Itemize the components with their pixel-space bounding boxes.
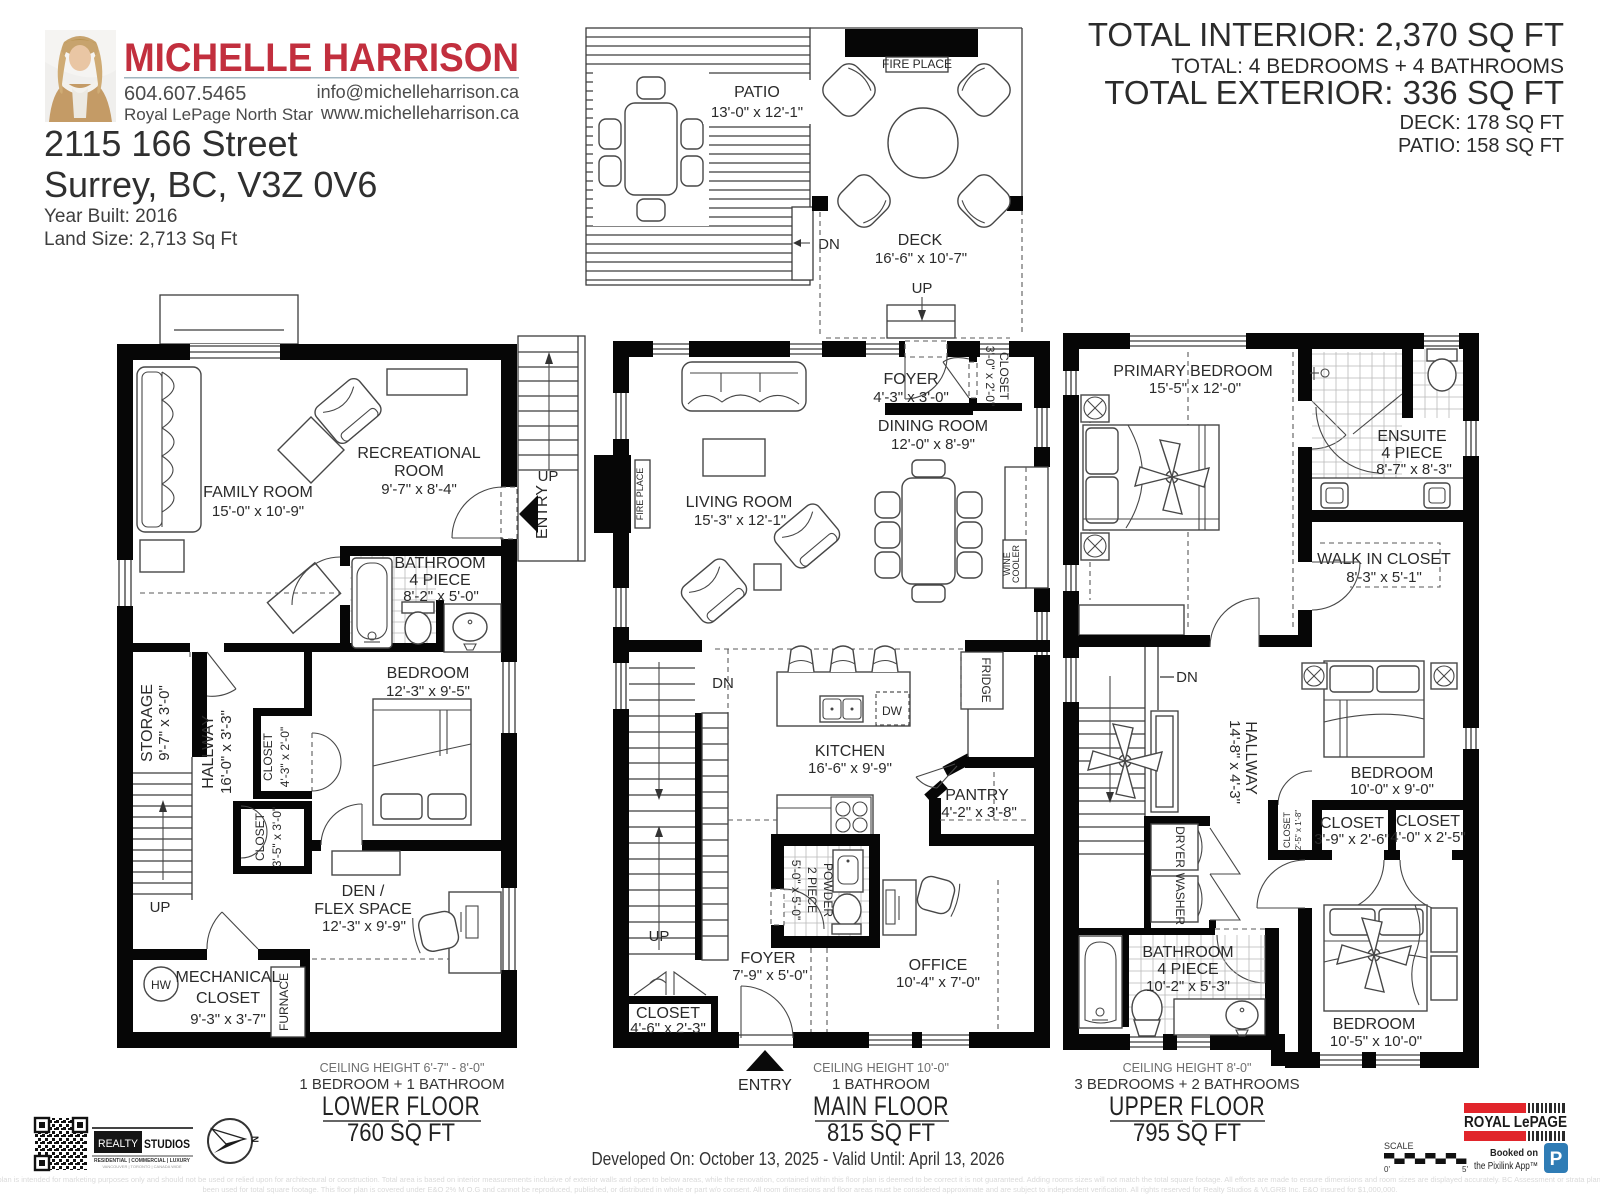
- svg-text:WALK IN CLOSET: WALK IN CLOSET: [1317, 551, 1451, 568]
- svg-text:CLOSET: CLOSET: [1396, 813, 1460, 830]
- svg-text:OFFICE: OFFICE: [909, 957, 968, 974]
- svg-text:CEILING HEIGHT 6'-7" - 8'-0": CEILING HEIGHT 6'-7" - 8'-0": [320, 1061, 485, 1075]
- svg-text:815 SQ FT: 815 SQ FT: [827, 1119, 935, 1147]
- svg-text:2 PIECE: 2 PIECE: [805, 867, 819, 913]
- svg-text:760 SQ FT: 760 SQ FT: [347, 1119, 455, 1147]
- svg-text:4'-2" x 3'-8": 4'-2" x 3'-8": [941, 804, 1017, 821]
- svg-text:795 SQ FT: 795 SQ FT: [1133, 1119, 1241, 1147]
- svg-text:HALLWAY: HALLWAY: [1242, 721, 1259, 795]
- svg-text:FRIDGE: FRIDGE: [979, 657, 993, 702]
- svg-text:LOWER FLOOR: LOWER FLOOR: [322, 1091, 480, 1121]
- svg-text:4 PIECE: 4 PIECE: [409, 572, 470, 589]
- svg-text:FLEX SPACE: FLEX SPACE: [314, 901, 412, 918]
- svg-text:FOYER: FOYER: [740, 950, 795, 967]
- svg-text:DN: DN: [818, 236, 840, 253]
- svg-text:This floor plan is intended fo: This floor plan is intended for marketin…: [0, 1175, 1600, 1184]
- svg-text:FIRE PLACE: FIRE PLACE: [882, 57, 952, 71]
- svg-text:MAIN FLOOR: MAIN FLOOR: [813, 1091, 949, 1121]
- svg-text:ROYAL LePAGE: ROYAL LePAGE: [1464, 1114, 1567, 1131]
- svg-text:UP: UP: [538, 468, 559, 485]
- svg-text:FAMILY ROOM: FAMILY ROOM: [203, 484, 313, 501]
- svg-text:COOLER: COOLER: [1011, 544, 1021, 583]
- svg-text:DN: DN: [1176, 669, 1198, 686]
- svg-text:8'-2" x 5'-0": 8'-2" x 5'-0": [403, 588, 479, 605]
- svg-text:BEDROOM: BEDROOM: [387, 665, 470, 682]
- svg-text:SCALE: SCALE: [1384, 1141, 1414, 1151]
- svg-text:15'-0" x 10'-9": 15'-0" x 10'-9": [212, 503, 304, 520]
- svg-text:www.michelleharrison.ca: www.michelleharrison.ca: [320, 103, 520, 123]
- svg-text:UP: UP: [649, 928, 670, 945]
- svg-text:WASHER: WASHER: [1173, 873, 1187, 926]
- svg-text:Royal LePage North Star: Royal LePage North Star: [124, 105, 313, 124]
- svg-text:ENSUITE: ENSUITE: [1377, 428, 1446, 445]
- svg-text:15'-3" x 12'-1": 15'-3" x 12'-1": [694, 512, 786, 529]
- svg-text:DEN /: DEN /: [342, 883, 385, 900]
- svg-text:BATHROOM: BATHROOM: [394, 555, 485, 572]
- svg-text:BATHROOM: BATHROOM: [1142, 944, 1233, 961]
- svg-text:STORAGE: STORAGE: [139, 684, 156, 762]
- svg-text:DRYER: DRYER: [1173, 826, 1187, 868]
- svg-text:10'-4" x 7'-0": 10'-4" x 7'-0": [896, 974, 980, 991]
- svg-text:Year Built: 2016: Year Built: 2016: [44, 206, 177, 227]
- svg-text:3'-5" x 3'-0": 3'-5" x 3'-0": [270, 807, 284, 867]
- svg-text:10'-0" x 9'-0": 10'-0" x 9'-0": [1350, 781, 1434, 798]
- svg-text:DN: DN: [712, 675, 734, 692]
- svg-text:4'-0" x 2'-5": 4'-0" x 2'-5": [1390, 829, 1466, 846]
- svg-text:CEILING HEIGHT 8'-0": CEILING HEIGHT 8'-0": [1123, 1061, 1252, 1075]
- svg-text:8'-7" x 8'-3": 8'-7" x 8'-3": [1376, 461, 1452, 478]
- svg-text:7'-9" x 5'-0": 7'-9" x 5'-0": [732, 967, 808, 984]
- svg-text:5': 5': [1462, 1165, 1468, 1174]
- svg-text:MICHELLE HARRISON: MICHELLE HARRISON: [124, 36, 519, 80]
- svg-text:KITCHEN: KITCHEN: [815, 743, 885, 760]
- svg-text:14'-8" x 4'-3": 14'-8" x 4'-3": [1226, 720, 1243, 804]
- svg-text:UP: UP: [150, 899, 171, 916]
- svg-text:CEILING HEIGHT 10'-0": CEILING HEIGHT 10'-0": [813, 1061, 949, 1075]
- svg-text:Surrey, BC, V3Z 0V6: Surrey, BC, V3Z 0V6: [44, 164, 377, 205]
- svg-text:HW: HW: [151, 978, 172, 992]
- svg-text:REALTY: REALTY: [98, 1138, 139, 1150]
- svg-text:been used for total square foo: been used for total square footage. This…: [202, 1185, 1397, 1194]
- svg-text:12'-0" x 8'-9": 12'-0" x 8'-9": [891, 436, 975, 453]
- svg-text:CLOSET: CLOSET: [997, 352, 1011, 401]
- svg-text:13'-0" x 12'-1": 13'-0" x 12'-1": [711, 104, 803, 121]
- svg-text:2115 166 Street: 2115 166 Street: [44, 123, 298, 164]
- svg-text:the Pixilink App™: the Pixilink App™: [1474, 1161, 1538, 1172]
- svg-text:4 PIECE: 4 PIECE: [1381, 445, 1442, 462]
- svg-text:604.607.5465: 604.607.5465: [124, 83, 246, 105]
- svg-text:FIRE PLACE: FIRE PLACE: [635, 468, 645, 521]
- svg-text:DW: DW: [882, 704, 903, 718]
- svg-text:12'-3" x 9'-9": 12'-3" x 9'-9": [322, 918, 406, 935]
- svg-text:CLOSET: CLOSET: [253, 812, 267, 861]
- svg-text:9'-7" x 3'-0": 9'-7" x 3'-0": [156, 685, 173, 761]
- svg-text:4'-3" x 2'-0": 4'-3" x 2'-0": [278, 727, 292, 787]
- svg-text:12'-3" x 9'-5": 12'-3" x 9'-5": [386, 683, 470, 700]
- svg-text:UPPER FLOOR: UPPER FLOOR: [1109, 1091, 1265, 1121]
- svg-text:3'-0" x 2'-0": 3'-0" x 2'-0": [983, 346, 997, 406]
- svg-text:CLOSET: CLOSET: [196, 990, 260, 1007]
- svg-text:10'-2" x 5'-3": 10'-2" x 5'-3": [1146, 978, 1230, 995]
- svg-text:RECREATIONAL: RECREATIONAL: [357, 445, 480, 462]
- svg-text:PATIO: PATIO: [734, 84, 780, 101]
- svg-text:5'-0" x 5'-0": 5'-0" x 5'-0": [789, 860, 803, 920]
- svg-text:0': 0': [1384, 1165, 1390, 1174]
- svg-text:STUDIOS: STUDIOS: [144, 1137, 190, 1151]
- svg-text:FOYER: FOYER: [883, 371, 938, 388]
- svg-text:DECK: DECK: [898, 232, 943, 249]
- svg-text:PATIO: 158 SQ FT: PATIO: 158 SQ FT: [1398, 135, 1564, 157]
- svg-text:POWDER: POWDER: [821, 863, 835, 917]
- svg-text:CLOSET: CLOSET: [1320, 815, 1384, 832]
- svg-text:10'-5" x 10'-0": 10'-5" x 10'-0": [1330, 1033, 1422, 1050]
- svg-text:CLOSET: CLOSET: [1282, 811, 1292, 848]
- svg-text:N: N: [250, 1136, 260, 1143]
- svg-text:BEDROOM: BEDROOM: [1333, 1016, 1416, 1033]
- svg-text:UP: UP: [912, 280, 933, 297]
- svg-text:HALLWAY: HALLWAY: [200, 715, 217, 789]
- svg-text:9'-3" x 3'-7": 9'-3" x 3'-7": [190, 1011, 266, 1028]
- svg-text:4 PIECE: 4 PIECE: [1157, 961, 1218, 978]
- svg-text:CLOSET: CLOSET: [261, 732, 275, 781]
- svg-text:DINING ROOM: DINING ROOM: [878, 418, 988, 435]
- svg-text:3'-9" x 2'-6": 3'-9" x 2'-6": [1314, 831, 1390, 848]
- svg-text:16'-6" x 10'-7": 16'-6" x 10'-7": [875, 250, 967, 267]
- svg-text:Booked on: Booked on: [1490, 1148, 1538, 1159]
- svg-text:PANTRY: PANTRY: [945, 787, 1009, 804]
- svg-text:16'-6" x 9'-9": 16'-6" x 9'-9": [808, 760, 892, 777]
- svg-text:9'-7" x 8'-4": 9'-7" x 8'-4": [381, 481, 457, 498]
- svg-text:P: P: [1550, 1149, 1563, 1170]
- svg-text:MECHANICAL: MECHANICAL: [176, 969, 281, 986]
- svg-text:TOTAL EXTERIOR: 336 SQ FT: TOTAL EXTERIOR: 336 SQ FT: [1104, 74, 1564, 111]
- svg-text:ENTRY: ENTRY: [738, 1077, 792, 1094]
- svg-text:Developed On: October 13, 2025: Developed On: October 13, 2025 - Valid U…: [592, 1149, 1005, 1169]
- svg-text:VANCOUVER | TORONTO | CANADA W: VANCOUVER | TORONTO | CANADA WIDE: [102, 1164, 182, 1169]
- svg-text:4'-6" x 2'-3": 4'-6" x 2'-3": [630, 1020, 706, 1037]
- svg-text:info@michelleharrison.ca: info@michelleharrison.ca: [317, 82, 520, 102]
- svg-text:2'-5" x 1'-8": 2'-5" x 1'-8": [1294, 810, 1303, 850]
- svg-text:LIVING ROOM: LIVING ROOM: [686, 494, 793, 511]
- svg-text:TOTAL INTERIOR: 2,370 SQ FT: TOTAL INTERIOR: 2,370 SQ FT: [1088, 16, 1564, 53]
- svg-text:BEDROOM: BEDROOM: [1351, 765, 1434, 782]
- svg-text:15'-5" x 12'-0": 15'-5" x 12'-0": [1149, 380, 1241, 397]
- svg-text:16'-0" x 3'-3": 16'-0" x 3'-3": [218, 710, 235, 794]
- svg-text:ROOM: ROOM: [394, 463, 444, 480]
- svg-text:Land Size: 2,713 Sq Ft: Land Size: 2,713 Sq Ft: [44, 229, 238, 250]
- svg-text:PRIMARY BEDROOM: PRIMARY BEDROOM: [1113, 363, 1272, 380]
- svg-text:DECK: 178 SQ FT: DECK: 178 SQ FT: [1400, 112, 1565, 134]
